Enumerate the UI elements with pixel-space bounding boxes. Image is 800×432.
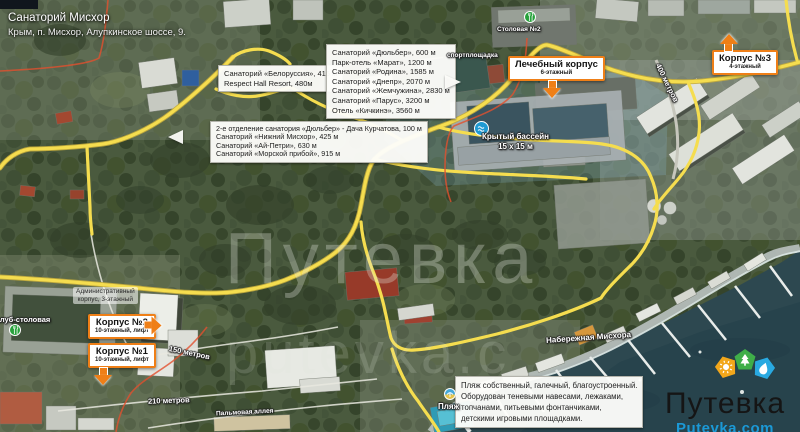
callout-beach-info: Пляж собственный, галечный, благоустроен… [455, 376, 643, 428]
callout-korpus-1: Корпус №1 10-этажный, лифт [88, 343, 156, 368]
callout-far-sanatoriums: Санаторий «Дюльбер», 600 м Парк-отель «М… [326, 44, 456, 119]
arrow-down-korpus1-icon [94, 368, 112, 385]
callout-korpus-3: Корпус №3 4-этажный [712, 50, 778, 75]
label-club-stolovaya: клуб-столовая [0, 315, 50, 324]
callout-line: Пляж собственный, галечный, благоустроен… [461, 380, 637, 391]
callout-line: Оборудован теневыми навесами, лежаками, [461, 391, 637, 402]
satellite-map-screenshot: Путевка putevka.c Санаторий Мисхор Крым,… [0, 0, 800, 432]
arrow-right-korpus2-icon [145, 317, 162, 335]
label-beach: Пляж [438, 402, 459, 411]
logo-badges [645, 345, 800, 383]
water-badge-icon [751, 354, 777, 380]
label-stolovaya: Столовая №2 [497, 26, 541, 33]
tree-badge-icon [735, 349, 756, 370]
callout-medical-building: Лечебный корпус 6-этажный [508, 56, 605, 81]
callout-line: Отель «Кичкинэ», 3560 м [332, 106, 450, 116]
logo-site-url: Putevka.com [645, 420, 800, 432]
callout-line: Санаторий «Родина», 1585 м [332, 67, 450, 77]
callout-line: топчанами, питьевыми фонтанчиками, [461, 402, 637, 413]
beach-icon [444, 388, 456, 400]
callout-pointer-left [168, 130, 183, 144]
callout-line: Санаторий «Парус», 3200 м [332, 96, 450, 106]
label-dist-210: 210 метров [148, 395, 190, 405]
label-indoor-pool: Крытый бассейн 15 х 15 м [482, 132, 549, 151]
callout-belorussia: Санаторий «Белоруссия», 415 м Respect Ha… [218, 65, 343, 92]
map-title: Санаторий Мисхор [8, 12, 109, 24]
cropped-corner-bar [0, 0, 38, 9]
label-sport-ground: спортплощадка [447, 52, 498, 59]
callout-line: Санаторий «Дюльбер», 600 м [332, 48, 450, 58]
arrow-up-korpus3-icon [720, 34, 738, 51]
restaurant-icon [9, 324, 21, 336]
label-admin-building: Административный корпус, 3-этажный [73, 287, 138, 304]
logo-wordmark: Путевка [645, 388, 800, 420]
callout-line: Санаторий «Морской прибой», 915 м [216, 150, 422, 158]
callout-line: Respect Hall Resort, 480м [224, 79, 337, 89]
callout-pointer-right [445, 75, 461, 89]
callout-line: Парк-отель «Марат», 1200 м [332, 58, 450, 68]
map-address: Крым, п. Мисхор, Алупкинское шоссе, 9. [8, 27, 186, 38]
callout-line: детскими игровыми площадками. [461, 413, 637, 424]
arrow-down-medical-icon [543, 81, 561, 98]
callout-line: Санаторий «Днепр», 2070 м [332, 77, 450, 87]
callout-line: Санаторий «Белоруссия», 415 м [224, 69, 337, 79]
callout-line: Санаторий «Жемчужина», 2830 м [332, 86, 450, 96]
callout-near-sanatoriums: 2-е отделение санатория «Дюльбер» - Дача… [210, 121, 428, 163]
putevka-logo: Путевка Putevka.com [645, 345, 800, 430]
restaurant-icon [524, 11, 536, 23]
